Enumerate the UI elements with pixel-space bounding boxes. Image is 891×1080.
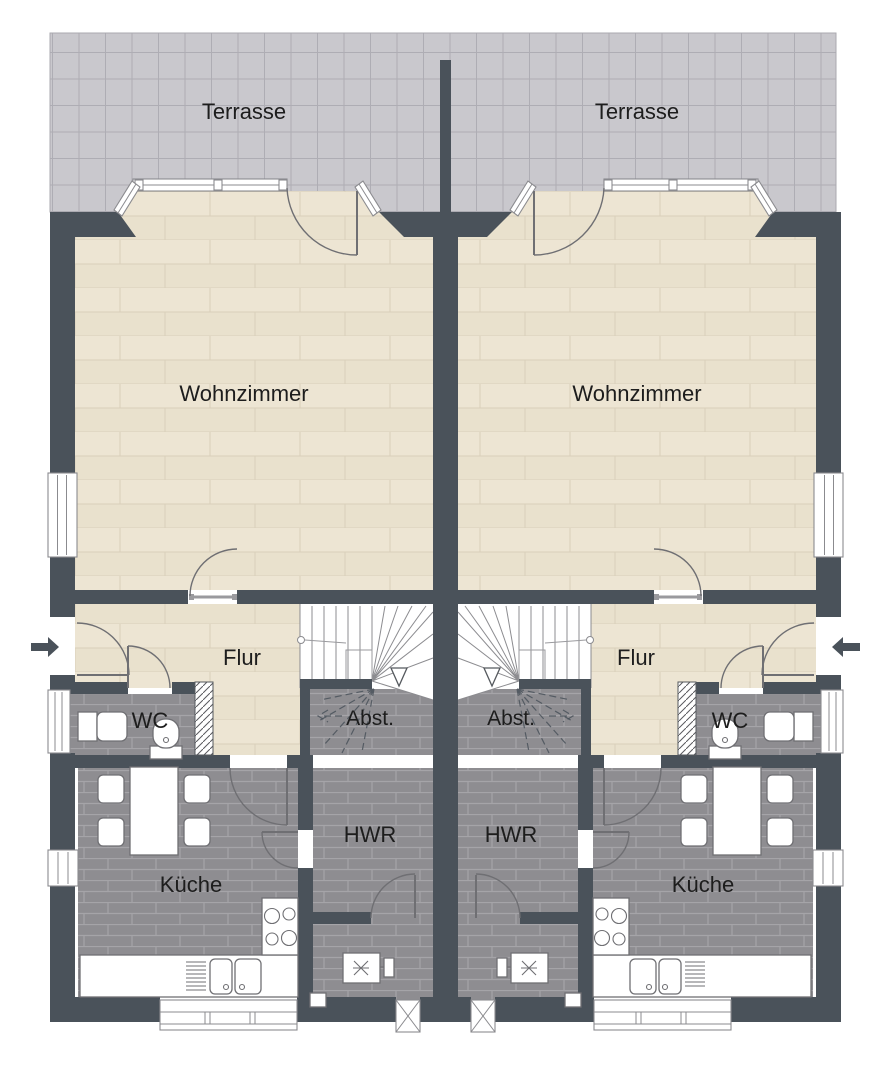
bay-floor <box>120 191 374 212</box>
installation-shaft-left <box>195 682 213 755</box>
floor-plan: Terrasse Terrasse Wohnzimmer Wohnzimmer … <box>0 0 891 1080</box>
room-label-kitchen-right: Küche <box>672 872 734 897</box>
utility-unit <box>310 993 326 1007</box>
room-label-living-left: Wohnzimmer <box>179 381 308 406</box>
room-label-living-right: Wohnzimmer <box>572 381 701 406</box>
room-label-wc-right: WC <box>712 708 749 733</box>
room-label-hall-right: Flur <box>617 645 655 670</box>
sink-basin <box>630 959 656 994</box>
entry-arrow-left-icon <box>31 637 59 657</box>
utility-unit <box>565 993 581 1007</box>
sink-basin <box>659 959 681 994</box>
room-label-terrace-left: Terrasse <box>202 99 286 124</box>
wc-window <box>821 690 843 753</box>
newel-post <box>298 637 305 644</box>
kitchen-side-window <box>48 850 78 886</box>
room-label-storage-left: Abst. <box>346 707 394 730</box>
installation-shaft-right <box>678 682 696 755</box>
sink-basin <box>210 959 232 994</box>
wc-window <box>48 690 70 753</box>
room-label-wc-left: WC <box>132 708 169 733</box>
newel-post <box>587 637 594 644</box>
room-label-terrace-right: Terrasse <box>595 99 679 124</box>
room-label-storage-right: Abst. <box>487 707 535 730</box>
entry-arrow-right-icon <box>832 637 860 657</box>
terrace-divider-wall <box>440 60 451 213</box>
room-label-utility-right: HWR <box>485 822 538 847</box>
sink-basin <box>235 959 261 994</box>
living-room-window <box>814 473 843 557</box>
kitchen-side-window <box>813 850 843 886</box>
floor-plan-canvas: Terrasse Terrasse Wohnzimmer Wohnzimmer … <box>0 0 891 1080</box>
room-label-utility-left: HWR <box>344 822 397 847</box>
utility-back-door <box>471 1000 495 1032</box>
room-label-hall-left: Flur <box>223 645 261 670</box>
wc-sink <box>764 712 813 741</box>
bay-floor <box>517 191 771 212</box>
utility-back-door <box>396 1000 420 1032</box>
party-wall <box>433 212 458 1022</box>
kitchen-bottom-window <box>594 1000 731 1030</box>
kitchen-bottom-window <box>160 1000 297 1030</box>
room-label-kitchen-left: Küche <box>160 872 222 897</box>
wc-sink <box>78 712 127 741</box>
living-room-window <box>48 473 77 557</box>
